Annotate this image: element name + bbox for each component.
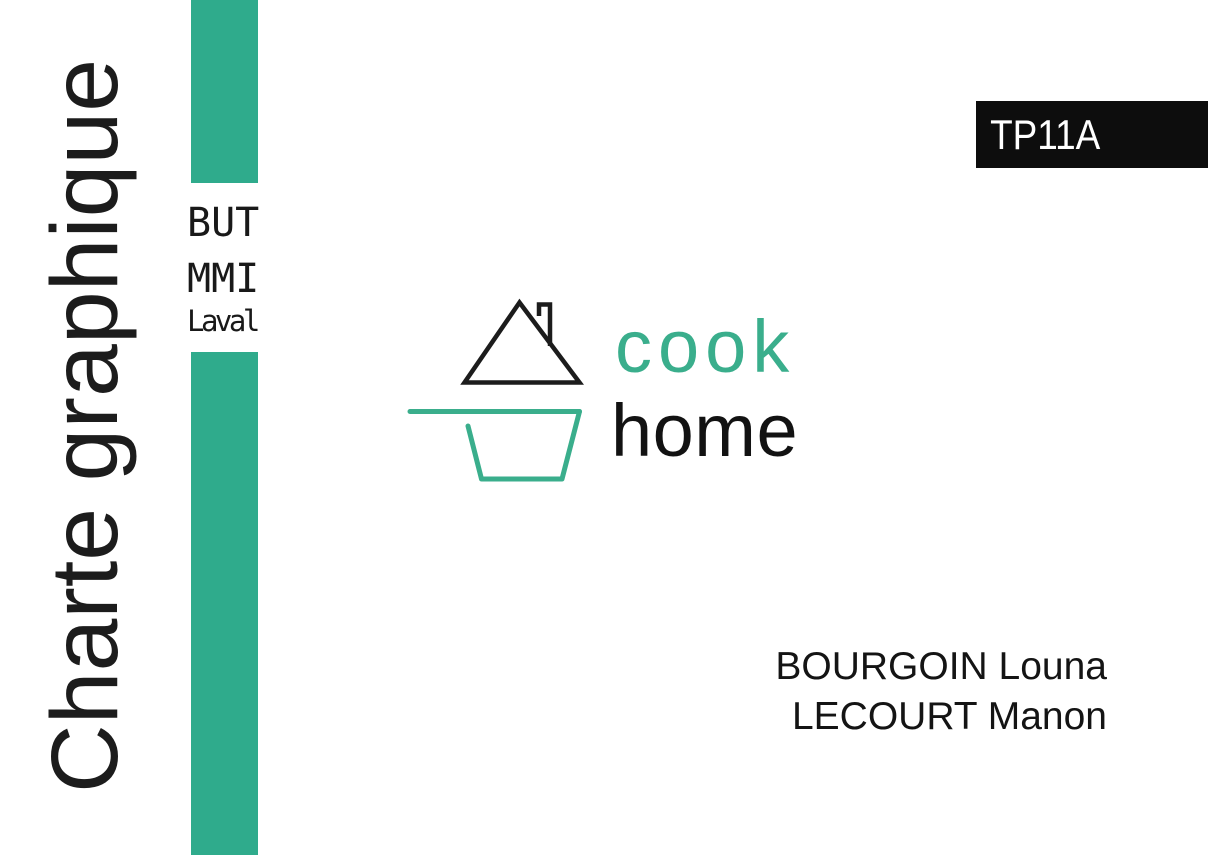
author-name: BOURGOIN Louna xyxy=(775,642,1107,692)
group-badge-label: TP11A xyxy=(976,101,1100,168)
accent-bar-bottom-segment xyxy=(191,352,258,855)
chimney-icon xyxy=(539,305,550,347)
page-title: Charte graphique xyxy=(38,59,133,793)
program-line-but: BUT xyxy=(187,203,259,243)
accent-bar-top-segment xyxy=(191,0,258,183)
program-line-laval: Laval xyxy=(187,307,257,336)
logo-wordmark-cook: cook xyxy=(615,310,795,384)
group-badge: TP11A xyxy=(976,101,1208,168)
cookhome-logo-icon xyxy=(400,292,595,492)
program-line-mmi: MMI xyxy=(187,259,259,299)
pot-icon xyxy=(468,412,580,480)
roof-icon xyxy=(465,303,580,383)
author-name: LECOURT Manon xyxy=(775,692,1107,742)
charte-graphique-cover-page: Charte graphique BUT MMI Laval TP11A coo… xyxy=(0,0,1208,855)
logo-wordmark-home: home xyxy=(611,394,798,468)
authors-block: BOURGOIN Louna LECOURT Manon xyxy=(775,642,1107,742)
